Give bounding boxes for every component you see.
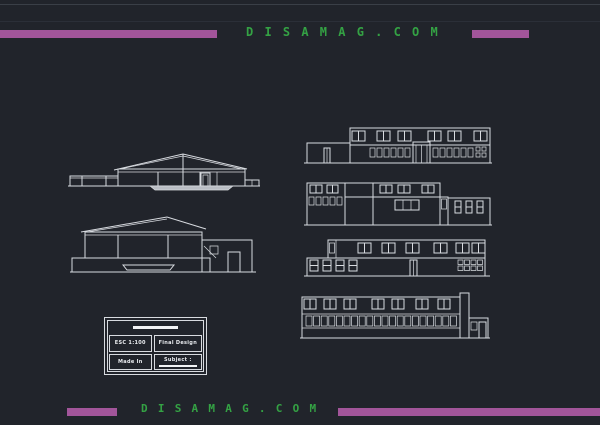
section-drawing-left-top xyxy=(66,145,262,195)
title-block-header-mark xyxy=(133,326,178,329)
subject-label: Subject : xyxy=(164,357,192,363)
title-block-header xyxy=(108,321,203,334)
elevation-drawing-left-bottom xyxy=(66,212,262,276)
title-block-author-cell: Made In xyxy=(109,354,152,371)
frame-line-top-2 xyxy=(0,21,600,22)
brand-text-top: D I S A M A G . C O M xyxy=(246,25,440,39)
title-block: ESC 1:100 Final Design Made In Subject : xyxy=(104,317,207,375)
accent-bar-top-right xyxy=(472,30,529,38)
elevation-drawing-right-1 xyxy=(300,120,495,168)
brand-text-bottom: D I S A M A G . C O M xyxy=(141,402,318,415)
title-block-scale-cell: ESC 1:100 xyxy=(109,335,152,352)
title-block-stage-cell: Final Design xyxy=(154,335,202,352)
accent-bar-bottom-right xyxy=(338,408,600,416)
author-value: Made In xyxy=(118,359,143,365)
accent-bar-bottom-left xyxy=(67,408,117,416)
frame-line-top xyxy=(0,4,600,5)
title-block-inner: ESC 1:100 Final Design Made In Subject : xyxy=(107,320,204,372)
title-block-grid: ESC 1:100 Final Design Made In Subject : xyxy=(108,334,203,371)
scale-value: ESC 1:100 xyxy=(115,340,146,346)
title-block-subject-cell: Subject : xyxy=(154,354,202,371)
accent-bar-top-left xyxy=(0,30,217,38)
elevation-drawing-right-4 xyxy=(298,290,493,340)
elevation-drawing-right-2 xyxy=(300,178,495,230)
elevation-drawing-right-3 xyxy=(300,236,495,284)
subject-underline xyxy=(159,365,197,367)
stage-value: Final Design xyxy=(159,340,198,346)
cad-viewport: D I S A M A G . C O M xyxy=(0,0,600,425)
